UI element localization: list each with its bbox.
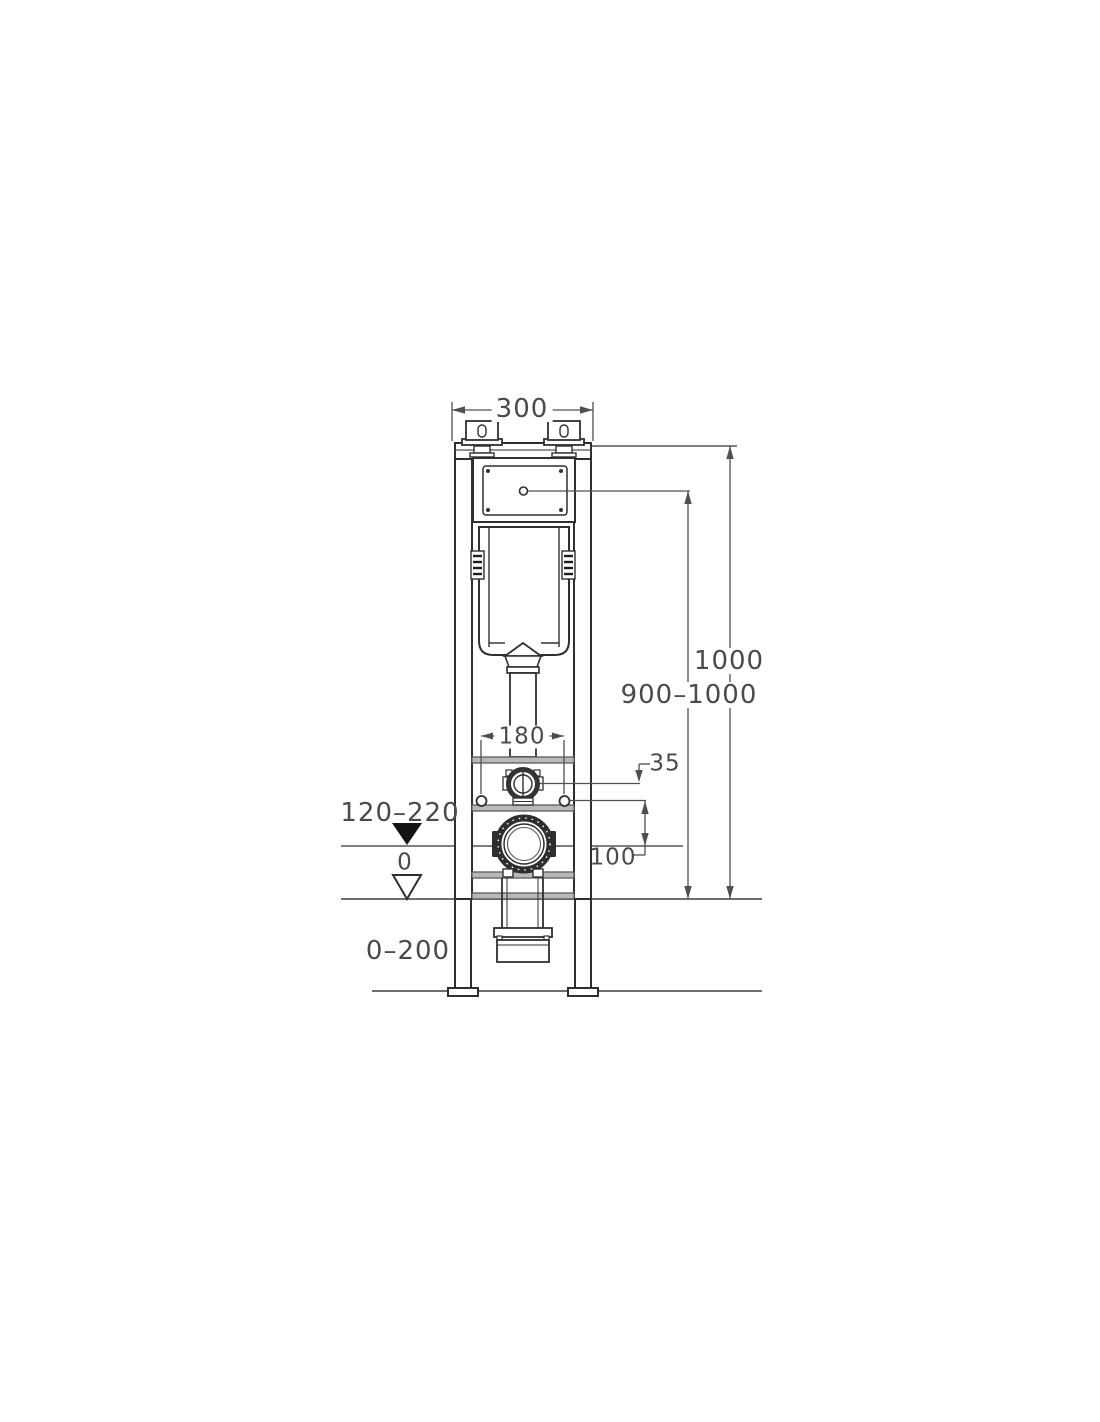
bracket-washer-right — [552, 453, 576, 457]
elbow-lid — [494, 928, 552, 937]
foot-right — [568, 988, 598, 996]
frame-right-rail — [574, 443, 591, 899]
bracket-nut-right — [556, 446, 572, 453]
dim-label-inlet-offset: 35 — [649, 753, 680, 776]
foot-left — [448, 988, 478, 996]
panel-screw — [559, 508, 563, 512]
dim-label-floor-level: 0 — [397, 852, 413, 875]
outlet-foot — [503, 869, 513, 877]
panel-screw — [486, 508, 490, 512]
bracket-slot-left — [478, 425, 486, 437]
flush-bend-neck — [505, 656, 541, 667]
dim-label-bolt-spacing: 180 — [495, 726, 550, 749]
frame-left-rail — [455, 443, 472, 899]
bracket-slot-right — [560, 425, 568, 437]
bracket-washer-left — [470, 453, 494, 457]
installation-diagram: 300 1000 900–1000 180 35 100 120–220 0 0… — [0, 0, 1100, 1422]
panel-screw — [486, 469, 490, 473]
elbow-body — [497, 940, 549, 962]
dim-label-leg-adjust-range: 0–200 — [366, 938, 450, 964]
dim-label-outlet-to-bolts: 100 — [590, 847, 637, 870]
dim-35 — [540, 764, 650, 784]
panel-screw — [559, 469, 563, 473]
cistern-tank — [479, 527, 569, 757]
dim-label-frame-width: 300 — [492, 396, 553, 422]
drain-drop — [494, 878, 552, 962]
flush-pipe-flange — [507, 667, 539, 673]
floor-level-datum — [393, 875, 421, 899]
diagram-linework — [0, 0, 1100, 1422]
waste-outlet — [492, 818, 556, 877]
dim-label-panel-height-range: 900–1000 — [617, 682, 762, 708]
water-inlet-fitting — [503, 770, 543, 806]
dim-label-outlet-height-range: 120–220 — [340, 800, 459, 826]
panel-center-point — [520, 487, 528, 495]
outlet-foot — [533, 869, 543, 877]
flush-access-panel — [473, 458, 575, 522]
dim-label-total-height: 1000 — [690, 648, 768, 674]
bracket-nut-left — [474, 446, 490, 453]
